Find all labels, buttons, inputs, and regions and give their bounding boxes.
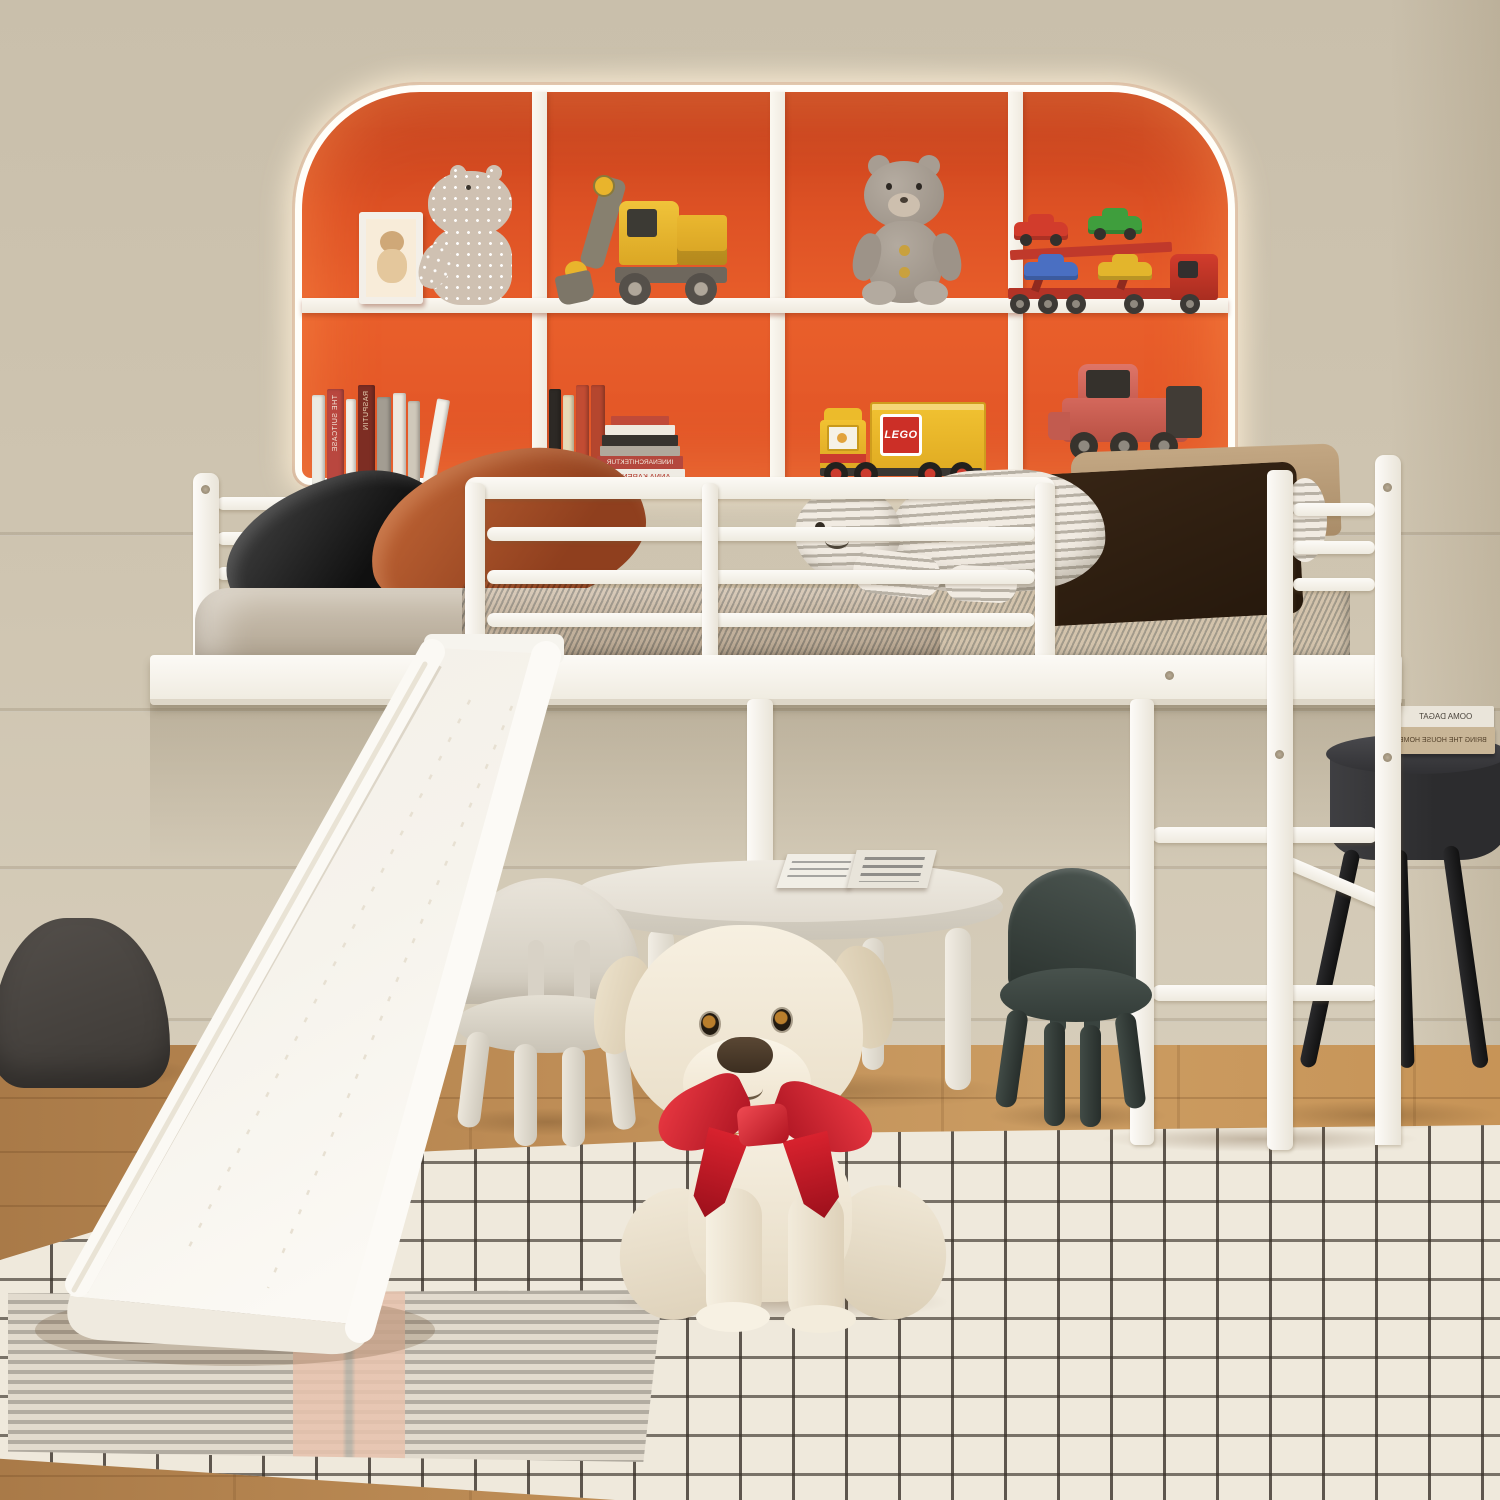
slide-surface — [70, 648, 552, 1326]
room-scene: THE SUITCASE RASPUTIN INNENARCHITEKTUR A… — [0, 0, 1500, 1500]
slide — [0, 0, 1500, 1500]
